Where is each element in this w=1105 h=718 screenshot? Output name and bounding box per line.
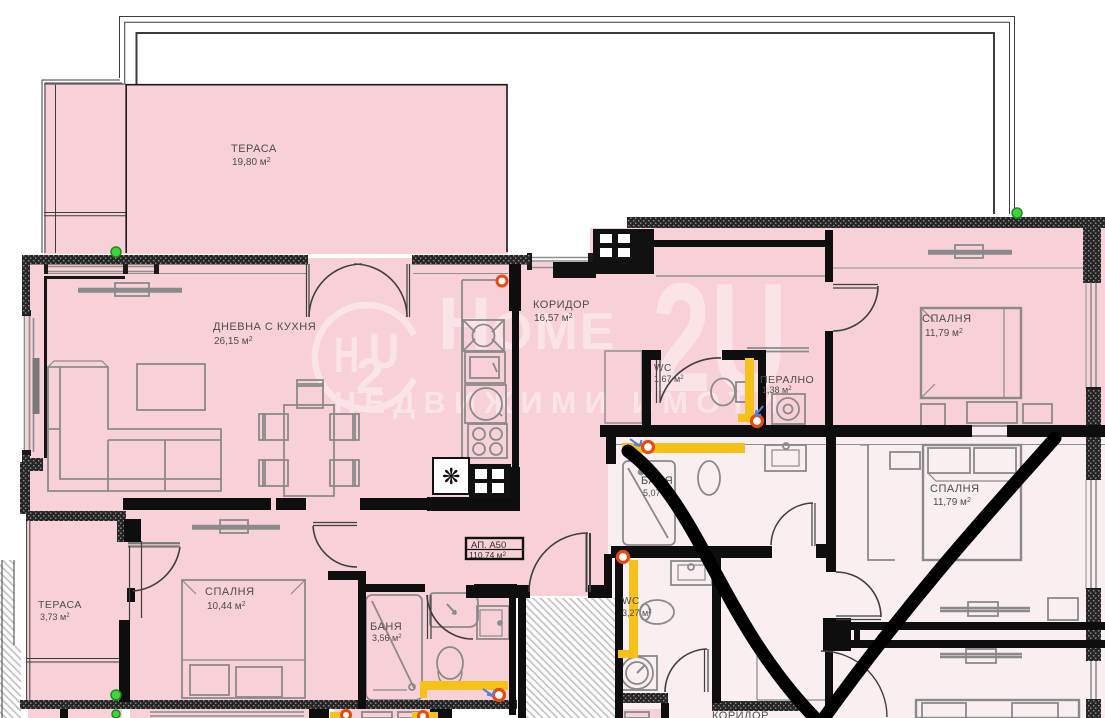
svg-text:3,56 м2: 3,56 м2 bbox=[372, 633, 402, 643]
svg-text:ТЕРАСА: ТЕРАСА bbox=[38, 599, 82, 611]
svg-text:11,79 м2: 11,79 м2 bbox=[925, 328, 963, 339]
svg-text:ТЕРАСА: ТЕРАСА bbox=[231, 143, 277, 155]
svg-text:КОРИДОР: КОРИДОР bbox=[712, 710, 769, 718]
svg-text:19,80 м2: 19,80 м2 bbox=[232, 157, 271, 168]
svg-text:1,38 м2: 1,38 м2 bbox=[762, 385, 792, 395]
svg-text:БАНЯ: БАНЯ bbox=[370, 621, 402, 633]
svg-text:НЕДВИЖИМИ ИМОТИ: НЕДВИЖИМИ ИМОТИ bbox=[334, 385, 786, 420]
svg-text:OME: OME bbox=[492, 303, 616, 361]
svg-text:❋: ❋ bbox=[442, 464, 460, 489]
svg-text:КОРИДОР: КОРИДОР bbox=[533, 299, 590, 311]
svg-text:1,67 м2: 1,67 м2 bbox=[654, 374, 684, 384]
svg-text:26,15 м2: 26,15 м2 bbox=[214, 336, 253, 347]
svg-text:СПАЛНЯ: СПАЛНЯ bbox=[922, 313, 972, 325]
svg-text:WC: WC bbox=[654, 363, 672, 374]
svg-text:11,79 м2: 11,79 м2 bbox=[933, 497, 971, 508]
svg-text:3,73 м2: 3,73 м2 bbox=[40, 612, 70, 622]
svg-text:110,74 м2: 110,74 м2 bbox=[469, 550, 507, 560]
svg-text:СПАЛНЯ: СПАЛНЯ bbox=[930, 483, 980, 495]
svg-text:3,27 м2: 3,27 м2 bbox=[622, 608, 652, 618]
svg-text:U: U bbox=[369, 323, 399, 379]
svg-text:10,44 м2: 10,44 м2 bbox=[207, 601, 246, 612]
svg-text:ДНЕВНА С КУХНЯ: ДНЕВНА С КУХНЯ bbox=[213, 321, 316, 333]
svg-text:16,57 м2: 16,57 м2 bbox=[534, 313, 573, 324]
svg-text:СПАЛНЯ: СПАЛНЯ bbox=[205, 586, 255, 598]
svg-text:WC: WC bbox=[622, 596, 640, 607]
